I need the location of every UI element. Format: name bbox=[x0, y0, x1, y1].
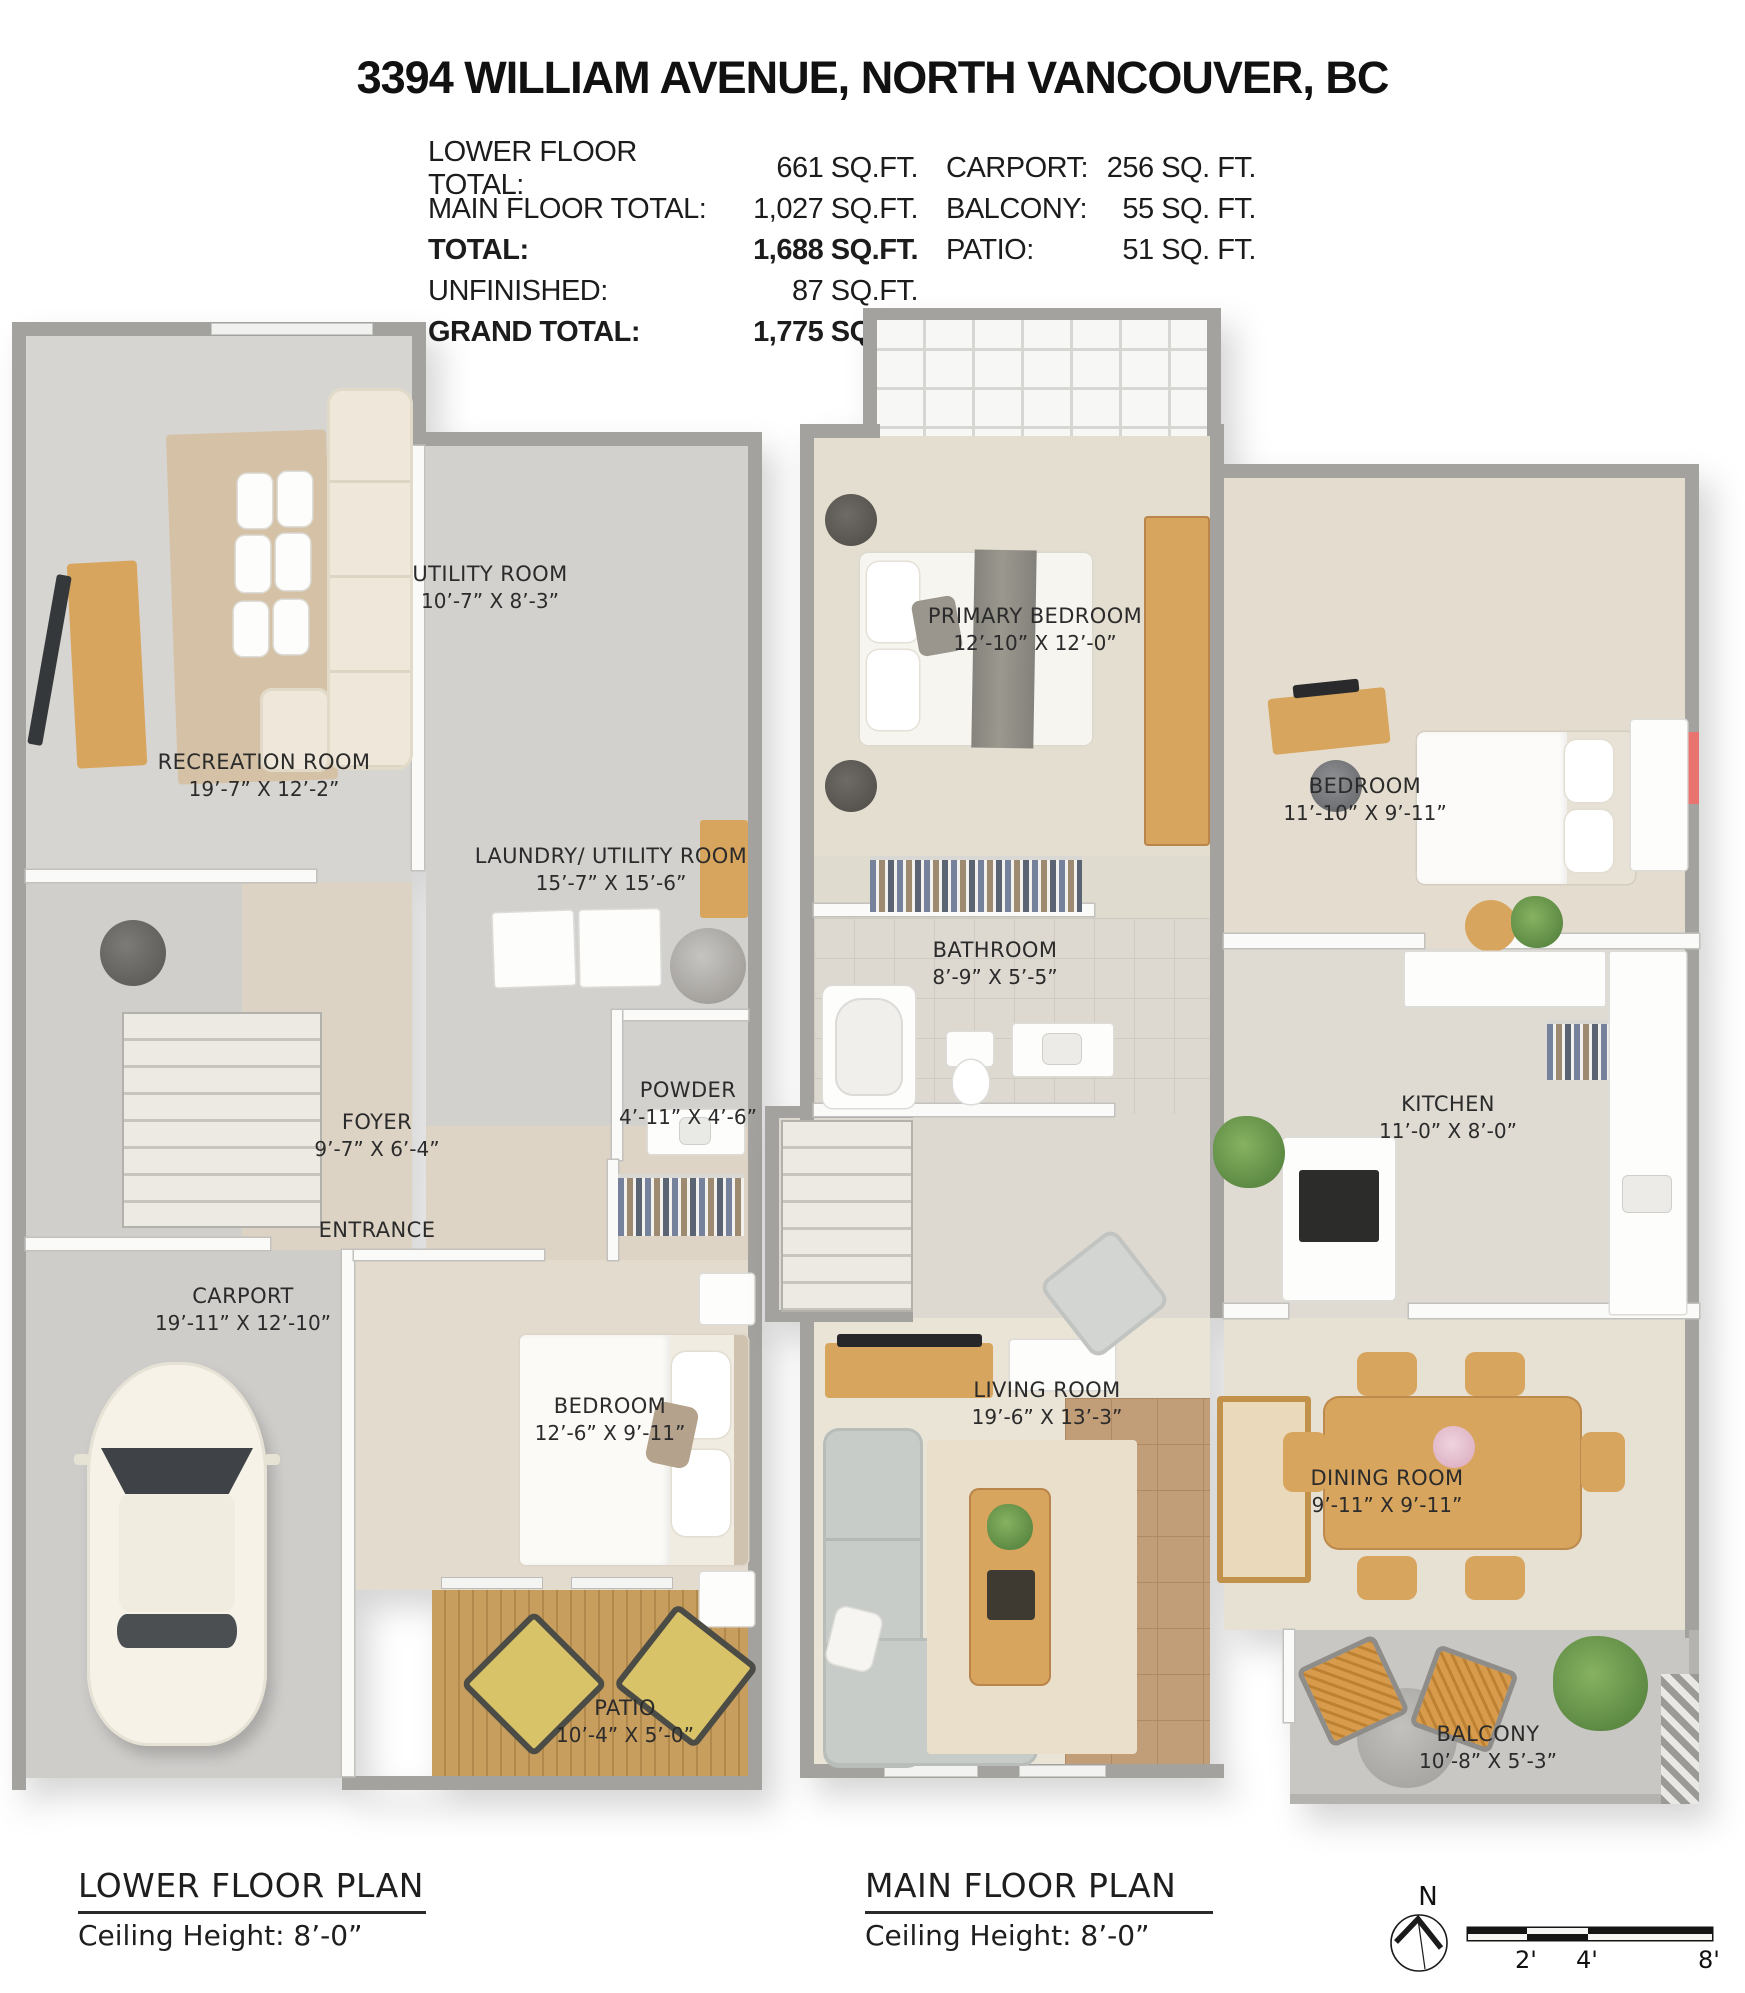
staircase bbox=[781, 1120, 913, 1312]
sink bbox=[1043, 1034, 1081, 1064]
car-roof bbox=[119, 1494, 235, 1612]
car-windshield bbox=[101, 1448, 253, 1494]
stat-label: CARPORT: bbox=[946, 152, 1096, 185]
coffee-table bbox=[236, 536, 270, 592]
main-floor-plan: PRIMARY BEDROOM 12’-10” X 12’-0” BEDROOM… bbox=[765, 308, 1713, 1813]
stats-row: MAIN FLOOR TOTAL: 1,027 SQ.FT. BALCONY: … bbox=[428, 189, 1288, 230]
room-label-bathroom: BATHROOM 8’-9” X 5’-5” bbox=[932, 938, 1057, 989]
stat-value: 1,688 SQ.FT. bbox=[728, 234, 918, 267]
interior-wall bbox=[342, 1250, 354, 1776]
wall bbox=[12, 322, 26, 1790]
scale-segment bbox=[1468, 1928, 1527, 1934]
interior-wall bbox=[26, 870, 316, 882]
main-floor-caption: MAIN FLOOR PLAN Ceiling Height: 8’-0” bbox=[865, 1866, 1213, 1952]
balcony-rail bbox=[1290, 1794, 1699, 1804]
closet-clothes bbox=[618, 1174, 744, 1236]
stat-value: 661 SQ.FT. bbox=[728, 152, 918, 185]
room-label-living-room: LIVING ROOM 19’-6” X 13’-3” bbox=[972, 1378, 1123, 1429]
dining-chair bbox=[1581, 1432, 1625, 1492]
dining-chair bbox=[1357, 1556, 1417, 1600]
plant bbox=[1213, 1116, 1285, 1188]
scale-segment bbox=[1588, 1928, 1712, 1934]
room-label-balcony: BALCONY 10’-8” X 5’-3” bbox=[1419, 1722, 1557, 1773]
floorplan-sheet: 3394 WILLIAM AVENUE, NORTH VANCOUVER, BC… bbox=[0, 0, 1745, 1993]
lower-floor-plan: RECREATION ROOM 19’-7” X 12’-2” UTILITY … bbox=[12, 322, 762, 1790]
stat-label: LOWER FLOOR TOTAL: bbox=[428, 136, 728, 202]
wall bbox=[1210, 424, 1224, 1318]
coffee-table bbox=[276, 534, 310, 590]
toilet bbox=[953, 1060, 989, 1104]
scale-label-2ft: 2' bbox=[1515, 1946, 1537, 1974]
nightstand-round bbox=[1465, 900, 1517, 952]
kitchen-counter-run bbox=[1610, 952, 1686, 1314]
pillow bbox=[1565, 810, 1613, 872]
floor-lamp bbox=[100, 920, 166, 986]
staircase bbox=[122, 1012, 322, 1228]
coffee-table bbox=[234, 602, 268, 656]
accent-wall bbox=[1685, 732, 1699, 804]
cooktop bbox=[1299, 1170, 1379, 1242]
nightstand bbox=[700, 1572, 754, 1626]
window bbox=[1020, 1766, 1105, 1776]
coffee-table bbox=[274, 600, 308, 654]
wall bbox=[412, 432, 762, 446]
pillow bbox=[867, 562, 919, 642]
washer bbox=[493, 911, 576, 988]
main-floor-ceiling-height: Ceiling Height: 8’-0” bbox=[865, 1919, 1213, 1952]
bedside-lamp bbox=[825, 494, 877, 546]
coffee-table bbox=[278, 472, 312, 526]
wall bbox=[1207, 308, 1221, 436]
coffee-table bbox=[238, 474, 272, 528]
stat-label: TOTAL: bbox=[428, 234, 728, 267]
coffee-table-tray bbox=[987, 1570, 1035, 1620]
pillow bbox=[867, 650, 919, 730]
lower-floor-caption: LOWER FLOOR PLAN Ceiling Height: 8’-0” bbox=[78, 1866, 426, 1952]
car-rear-window bbox=[117, 1614, 237, 1648]
stat-value: 256 SQ. FT. bbox=[1096, 152, 1256, 185]
compass-icon bbox=[1388, 1912, 1450, 1974]
window bbox=[212, 324, 372, 334]
skylight-window-bay bbox=[877, 312, 1207, 436]
stats-row: LOWER FLOOR TOTAL: 661 SQ.FT. CARPORT: 2… bbox=[428, 148, 1288, 189]
room-label-lower-bedroom: BEDROOM 12’-6” X 9’-11” bbox=[535, 1394, 686, 1445]
tv-console bbox=[825, 1343, 993, 1398]
room-label-laundry: LAUNDRY/ UTILITY ROOM 15’-7” X 15’-6” bbox=[475, 844, 747, 895]
balcony-stair-hatch bbox=[1661, 1674, 1699, 1804]
room-label-bedroom2: BEDROOM 11’-10” X 9’-11” bbox=[1283, 774, 1446, 825]
wall bbox=[863, 308, 1221, 320]
stat-label: UNFINISHED: bbox=[428, 275, 728, 308]
stat-value: 1,027 SQ.FT. bbox=[728, 193, 918, 226]
nightstand bbox=[700, 1274, 754, 1324]
interior-wall bbox=[26, 1238, 270, 1250]
interior-wall bbox=[354, 1250, 544, 1260]
room-label-powder: POWDER 4’-11” X 4’-6” bbox=[619, 1078, 757, 1129]
stats-row: UNFINISHED: 87 SQ.FT. bbox=[428, 271, 1288, 312]
north-label: N bbox=[1404, 1882, 1452, 1912]
dryer bbox=[579, 909, 660, 986]
car-mirror bbox=[74, 1454, 90, 1465]
interior-wall bbox=[1284, 1630, 1294, 1722]
lower-floor-caption-title: LOWER FLOOR PLAN bbox=[78, 1866, 426, 1914]
main-floor-caption-title: MAIN FLOOR PLAN bbox=[865, 1866, 1213, 1914]
stat-label: BALCONY: bbox=[946, 193, 1096, 226]
dresser bbox=[1631, 720, 1687, 870]
room-label-entrance: ENTRANCE bbox=[319, 1218, 436, 1242]
bathtub-basin bbox=[835, 998, 903, 1096]
wall bbox=[863, 308, 877, 436]
stat-label: MAIN FLOOR TOTAL: bbox=[428, 193, 728, 226]
room-label-foyer: FOYER 9’-7” X 6’-4” bbox=[314, 1110, 439, 1161]
stat-label: PATIO: bbox=[946, 234, 1096, 267]
wall bbox=[800, 424, 814, 1778]
room-label-kitchen: KITCHEN 11’-0” X 8’-0” bbox=[1379, 1092, 1517, 1143]
sliding-door bbox=[442, 1578, 542, 1588]
room-label-patio: PATIO 10’-4” X 5’-0” bbox=[556, 1696, 694, 1747]
room-label-utility: UTILITY ROOM 10’-7” X 8’-3” bbox=[412, 562, 567, 613]
scale-label-4ft: 4' bbox=[1576, 1946, 1598, 1974]
wall bbox=[1224, 464, 1699, 478]
flower-centerpiece bbox=[1433, 1426, 1475, 1468]
plant bbox=[1511, 896, 1563, 948]
media-console bbox=[67, 560, 148, 768]
room-label-dining-room: DINING ROOM 9’-11” X 9’-11” bbox=[1310, 1466, 1463, 1517]
plant bbox=[987, 1504, 1033, 1550]
interior-wall bbox=[412, 446, 424, 870]
utility-laundry-floor bbox=[426, 446, 748, 1126]
page-title: 3394 WILLIAM AVENUE, NORTH VANCOUVER, BC bbox=[0, 52, 1745, 104]
plant bbox=[1553, 1636, 1648, 1731]
room-label-recreation: RECREATION ROOM 19’-7” X 12’-2” bbox=[158, 750, 371, 801]
wall bbox=[1685, 464, 1699, 1638]
stat-value: 51 SQ. FT. bbox=[1096, 234, 1256, 267]
wall bbox=[765, 1106, 779, 1322]
interior-wall bbox=[608, 1160, 618, 1260]
dining-chair bbox=[1465, 1352, 1525, 1396]
dining-chair bbox=[1465, 1556, 1525, 1600]
closet-clothes bbox=[870, 856, 1082, 912]
water-heater bbox=[670, 928, 746, 1004]
room-label-carport: CARPORT 19’-11” X 12’-10” bbox=[155, 1284, 331, 1335]
bedside-lamp bbox=[825, 760, 877, 812]
sliding-door bbox=[572, 1578, 672, 1588]
interior-wall bbox=[612, 1010, 748, 1020]
car-mirror bbox=[264, 1454, 280, 1465]
stats-row: TOTAL: 1,688 SQ.FT. PATIO: 51 SQ. FT. bbox=[428, 230, 1288, 271]
wall bbox=[412, 322, 426, 446]
scale-bar bbox=[1468, 1928, 1712, 1940]
headboard bbox=[734, 1335, 748, 1565]
stat-value: 87 SQ.FT. bbox=[728, 275, 918, 308]
kitchen-sink bbox=[1623, 1176, 1671, 1212]
scale-label-8ft: 8' bbox=[1698, 1946, 1720, 1974]
dining-chair bbox=[1357, 1352, 1417, 1396]
stat-value: 55 SQ. FT. bbox=[1096, 193, 1256, 226]
room-label-primary-bedroom: PRIMARY BEDROOM 12’-10” X 12’-0” bbox=[928, 604, 1142, 655]
wardrobe bbox=[1144, 516, 1210, 846]
interior-wall bbox=[1224, 1304, 1288, 1318]
pillow bbox=[1565, 740, 1613, 802]
tv-screen bbox=[837, 1334, 982, 1347]
interior-wall bbox=[1224, 934, 1424, 948]
sofa bbox=[327, 388, 413, 770]
kitchen-back-counter bbox=[1405, 952, 1605, 1006]
lower-floor-ceiling-height: Ceiling Height: 8’-0” bbox=[78, 1919, 426, 1952]
wall bbox=[342, 1776, 762, 1790]
scale-segment bbox=[1527, 1934, 1588, 1940]
